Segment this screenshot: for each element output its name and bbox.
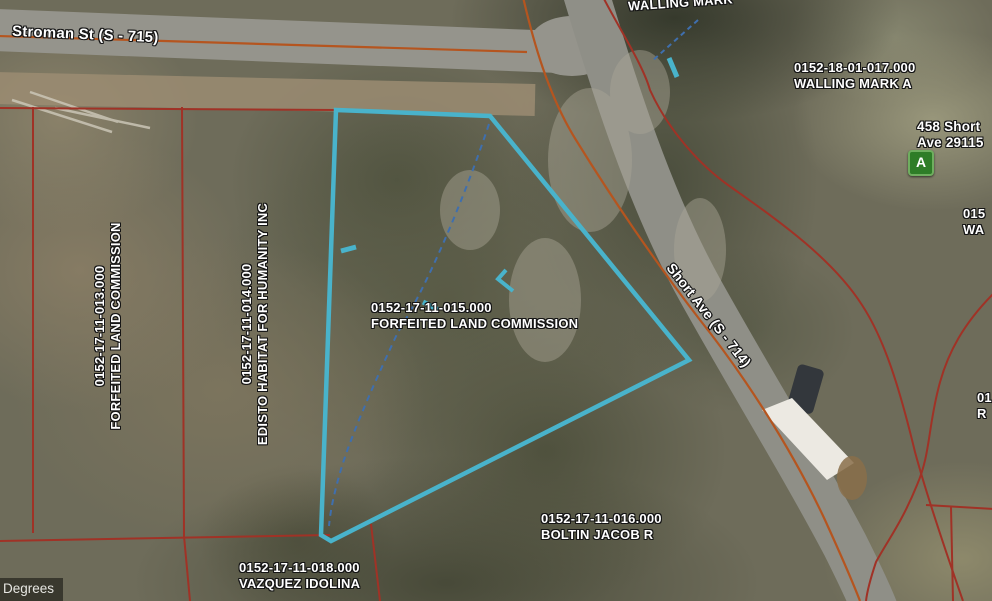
parcel-016-id: 0152-17-11-016.000 <box>541 511 662 527</box>
address-line1: 458 Short <box>917 119 984 135</box>
parcel-015-id: 0152-17-11-015.000 <box>371 300 578 316</box>
parcel-014-id: 0152-17-11-014.000 <box>239 199 255 449</box>
parcel-label-016: 0152-17-11-016.000 BOLTIN JACOB R <box>541 511 662 543</box>
parcel-015-owner: FORFEITED LAND COMMISSION <box>371 316 578 332</box>
parcel-016-owner: BOLTIN JACOB R <box>541 527 662 543</box>
parcel-label-edge-lower: 01 R <box>977 390 992 422</box>
address-marker-letter: A <box>916 154 926 170</box>
parcel-label-013: 0152-17-11-013.000 FORFEITED LAND COMMIS… <box>92 201 124 451</box>
parcel-label-018: 0152-17-11-018.000 VAZQUEZ IDOLINA <box>239 560 360 592</box>
status-units-text: Degrees <box>3 581 54 596</box>
address-label-458-short-ave: 458 Short Ave 29115 <box>917 119 984 151</box>
survey-dashed-line-north <box>651 20 698 62</box>
gis-map-canvas[interactable]: Stroman St (S - 715) Short Ave (S - 714)… <box>0 0 992 601</box>
parcel-label-017: 0152-18-01-017.000 WALLING MARK A <box>794 60 915 92</box>
parcel-018-owner: VAZQUEZ IDOLINA <box>239 576 360 592</box>
survey-tick-marks <box>341 58 677 310</box>
parcel-017-id: 0152-18-01-017.000 <box>794 60 915 76</box>
parcel-edge-upper-id: 015 <box>963 206 985 222</box>
parcel-013-id: 0152-17-11-013.000 <box>92 201 108 451</box>
parcel-edge-lower-owner: R <box>977 406 992 422</box>
status-units-label: Degrees <box>0 578 63 601</box>
parcel-label-014: 0152-17-11-014.000 EDISTO HABITAT FOR HU… <box>239 199 271 449</box>
parcel-edge-lower-id: 01 <box>977 390 992 406</box>
parcel-013-owner: FORFEITED LAND COMMISSION <box>108 201 124 451</box>
address-marker-a-icon[interactable]: A <box>908 150 934 176</box>
parcel-label-edge-upper: 015 WA <box>963 206 985 238</box>
parcel-014-owner: EDISTO HABITAT FOR HUMANITY INC <box>255 199 271 449</box>
parcel-018-id: 0152-17-11-018.000 <box>239 560 360 576</box>
parcel-label-015: 0152-17-11-015.000 FORFEITED LAND COMMIS… <box>371 300 578 332</box>
address-line2: Ave 29115 <box>917 135 984 151</box>
parcel-edge-upper-owner: WA <box>963 222 985 238</box>
parcel-017-owner: WALLING MARK A <box>794 76 915 92</box>
